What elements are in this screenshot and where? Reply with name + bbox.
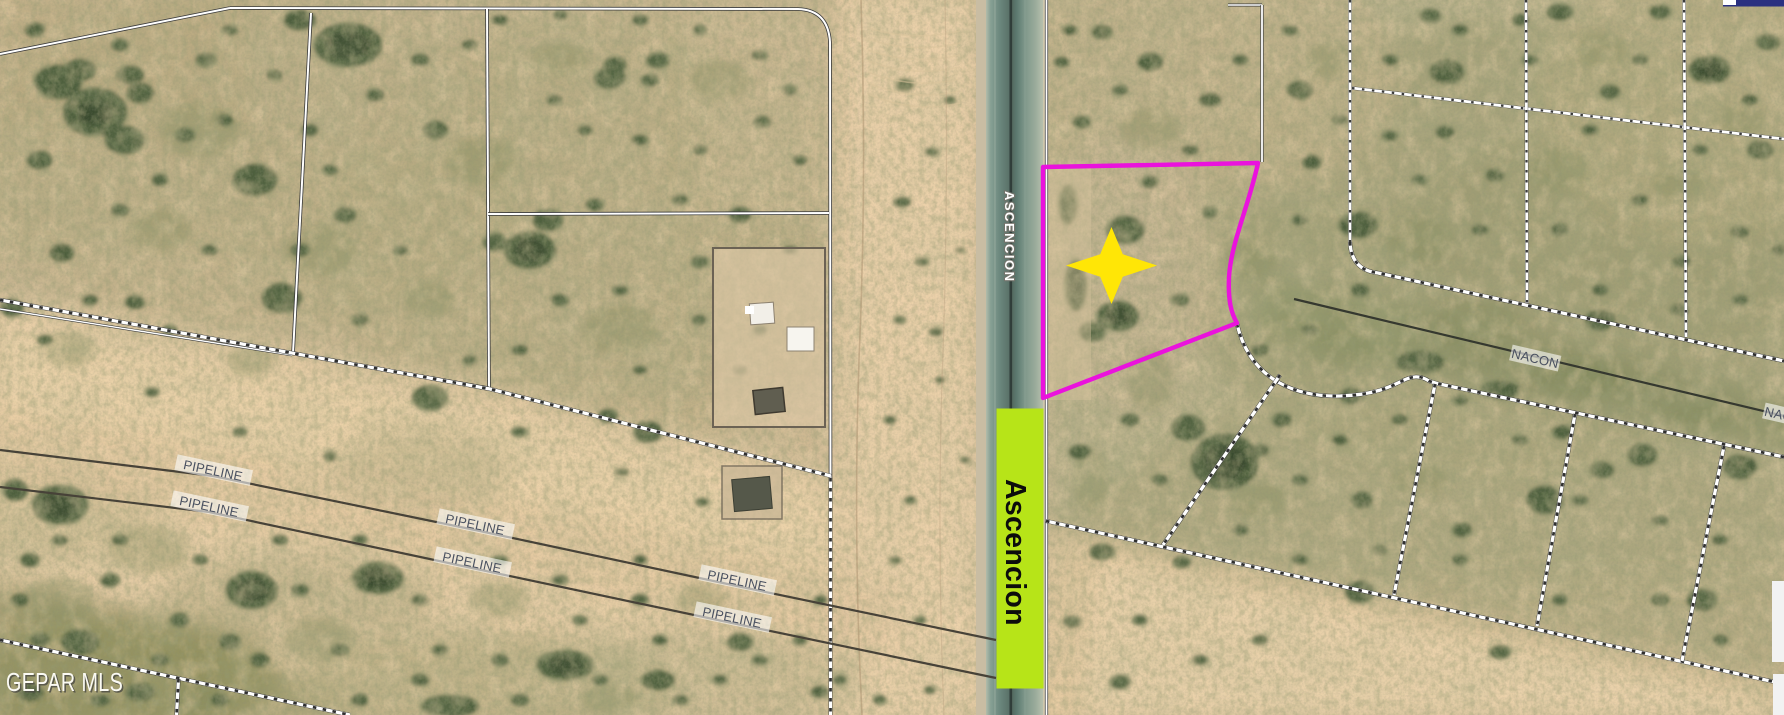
svg-text:ASCENCION: ASCENCION [1002, 191, 1017, 283]
svg-text:GEPAR MLS: GEPAR MLS [6, 667, 123, 696]
svg-text:Ascencion: Ascencion [999, 479, 1031, 626]
